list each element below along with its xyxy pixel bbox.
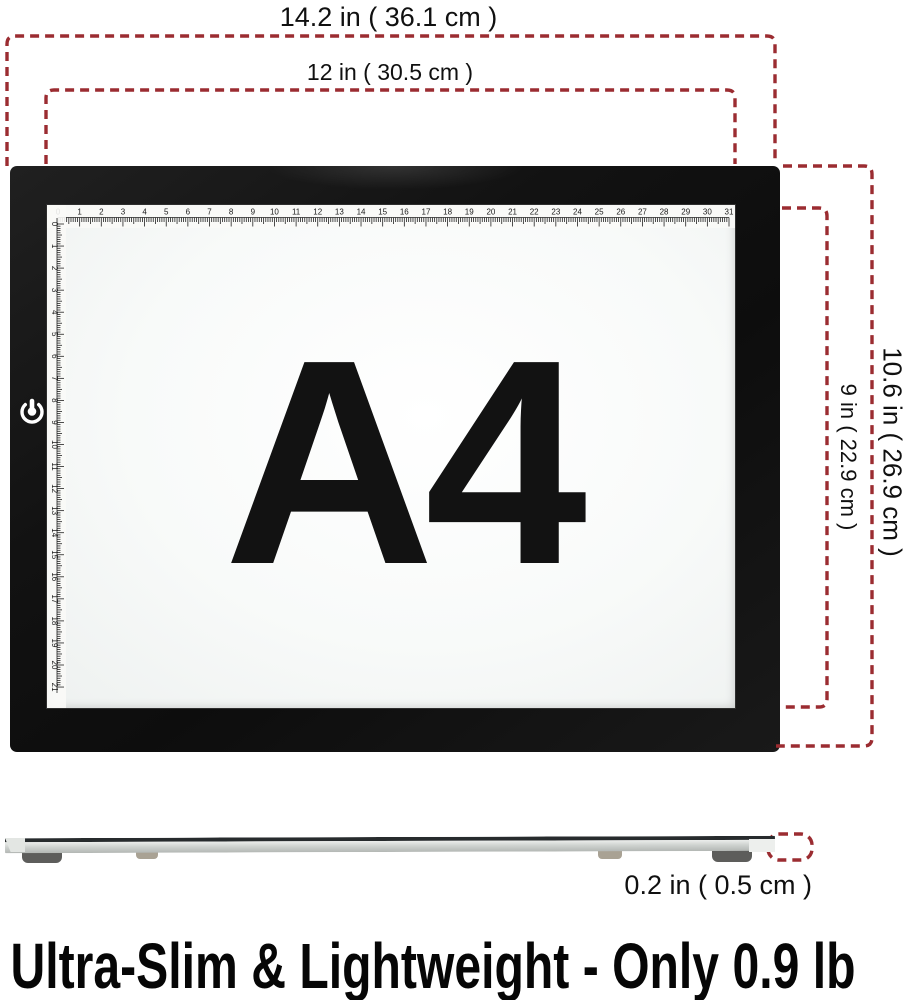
svg-text:7: 7 xyxy=(207,208,212,217)
svg-text:15: 15 xyxy=(378,208,387,217)
svg-text:10: 10 xyxy=(270,208,279,217)
svg-text:20: 20 xyxy=(486,208,495,217)
svg-text:18: 18 xyxy=(443,208,452,217)
svg-text:12: 12 xyxy=(313,208,322,217)
svg-text:30: 30 xyxy=(703,208,712,217)
headline-banner: Ultra-Slim & Lightweight - Only 0.9 lb xyxy=(0,928,911,1000)
svg-text:17: 17 xyxy=(422,208,431,217)
svg-text:27: 27 xyxy=(638,208,647,217)
inner-width-dimension-line xyxy=(46,90,735,164)
side-view-right-cap xyxy=(749,839,775,852)
svg-text:23: 23 xyxy=(551,208,560,217)
svg-text:31: 31 xyxy=(725,208,734,217)
svg-text:22: 22 xyxy=(530,208,539,217)
svg-text:19: 19 xyxy=(465,208,474,217)
svg-text:25: 25 xyxy=(595,208,604,217)
svg-text:28: 28 xyxy=(660,208,669,217)
svg-text:4: 4 xyxy=(142,208,147,217)
light-pad-surface: 0123456789101112131415161718192021222324… xyxy=(47,205,735,708)
product-dimension-diagram: 0123456789101112131415161718192021222324… xyxy=(0,0,911,1000)
inner-height-label: 9 in ( 22.9 cm ) xyxy=(835,384,861,531)
power-icon xyxy=(17,395,47,429)
svg-text:14: 14 xyxy=(357,208,366,217)
paper-size-label: A4 xyxy=(66,228,735,708)
svg-text:26: 26 xyxy=(616,208,625,217)
svg-text:8: 8 xyxy=(229,208,234,217)
svg-text:16: 16 xyxy=(400,208,409,217)
outer-width-label: 14.2 in ( 36.1 cm ) xyxy=(2,2,775,33)
svg-text:3: 3 xyxy=(121,208,126,217)
outer-height-label: 10.6 in ( 26.9 cm ) xyxy=(877,347,908,557)
inner-height-dimension-line xyxy=(782,208,827,707)
svg-text:5: 5 xyxy=(164,208,169,217)
svg-text:2: 2 xyxy=(99,208,104,217)
inner-width-label: 12 in ( 30.5 cm ) xyxy=(45,59,735,86)
thickness-label: 0.2 in ( 0.5 cm ) xyxy=(495,870,812,901)
left-ruler: 0123456789101112131415161718192021 xyxy=(47,205,66,708)
svg-text:21: 21 xyxy=(508,208,517,217)
headline-text: Ultra-Slim & Lightweight - Only 0.9 lb xyxy=(11,930,856,1000)
svg-text:6: 6 xyxy=(186,208,191,217)
top-ruler: 0123456789101112131415161718192021222324… xyxy=(47,205,735,228)
svg-text:1: 1 xyxy=(77,208,82,217)
svg-text:11: 11 xyxy=(292,208,301,217)
outer-width-dimension-line xyxy=(7,36,775,166)
light-pad-side-view xyxy=(5,836,775,853)
svg-text:13: 13 xyxy=(335,208,344,217)
svg-text:24: 24 xyxy=(573,208,582,217)
svg-text:9: 9 xyxy=(251,208,256,217)
svg-text:29: 29 xyxy=(681,208,690,217)
